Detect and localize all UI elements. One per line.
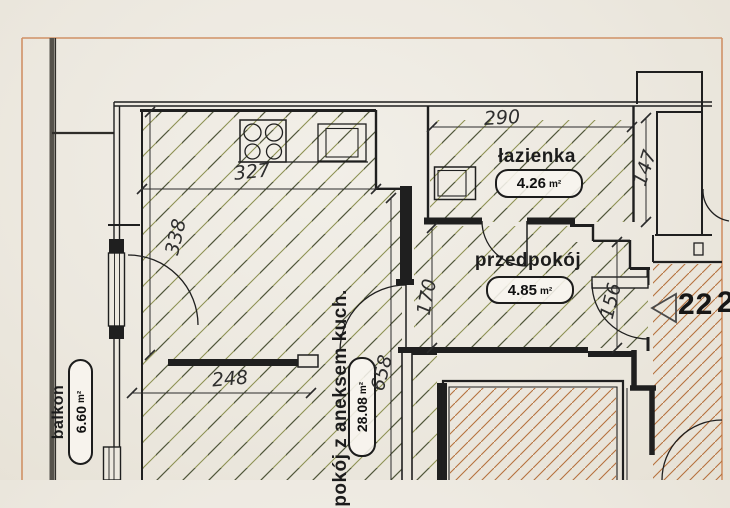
balkon-area-unit: m²: [76, 391, 87, 403]
adjacent-unit-number-partial: 2: [717, 286, 730, 320]
balkon-group: balkon 6.60 m²: [50, 352, 98, 472]
przedpokoj-label: przedpokój: [468, 250, 588, 272]
lower-window: [104, 447, 121, 480]
balkon-area-value: 6.60: [73, 406, 89, 433]
pokoj-area-value: 28.08: [354, 397, 370, 432]
przedpokoj-area-value: 4.85: [508, 282, 537, 299]
lazienka-area-badge: 4.26 m²: [495, 169, 583, 198]
floor-plan: łazienka 4.26 m² przedpokój 4.85 m² balk…: [0, 0, 730, 480]
neighbor-top-door-arc: [703, 189, 729, 221]
przedpokoj-area-badge: 4.85 m²: [486, 276, 574, 304]
przedpokoj-area-unit: m²: [540, 286, 552, 297]
cabinet-block: [298, 355, 318, 367]
lazienka-area-value: 4.26: [517, 175, 546, 192]
lazienka-area-unit: m²: [549, 179, 561, 190]
balkon-area-badge: 6.60 m²: [68, 359, 93, 465]
dim-290: 290: [461, 105, 542, 131]
balcony-door-window: [109, 253, 125, 326]
unit-number: 22: [678, 288, 713, 322]
lazienka-label: łazienka: [477, 146, 597, 168]
balkon-label: balkon: [50, 385, 68, 440]
